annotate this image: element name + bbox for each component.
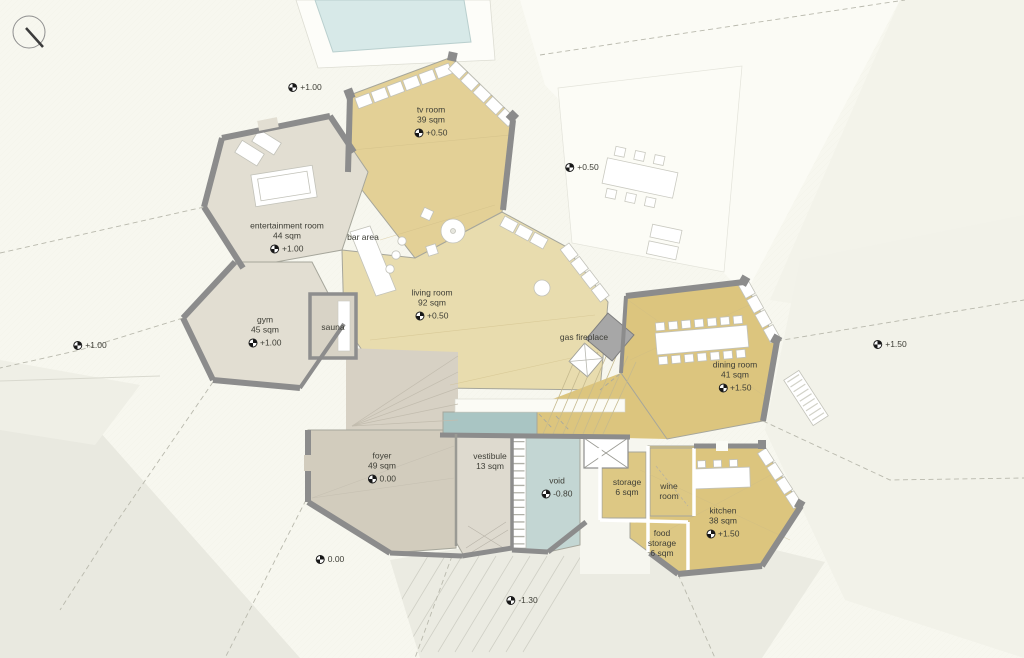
sauna-room: [310, 294, 356, 358]
outdoor-terrace: [558, 66, 742, 272]
shaft: [584, 438, 628, 468]
water-channel: [443, 412, 537, 434]
floor-plan-drawing: [0, 0, 1024, 658]
pool: [296, 0, 495, 68]
vestibule-stair: [512, 438, 526, 548]
coffee-table: [534, 280, 550, 296]
bridge-walkway: [455, 399, 625, 412]
room-vestibule-floor: [456, 434, 512, 556]
ramp-floor: [346, 348, 458, 430]
floor-plan-canvas: tv room 39 sqm +0.50 entertainment room …: [0, 0, 1024, 658]
